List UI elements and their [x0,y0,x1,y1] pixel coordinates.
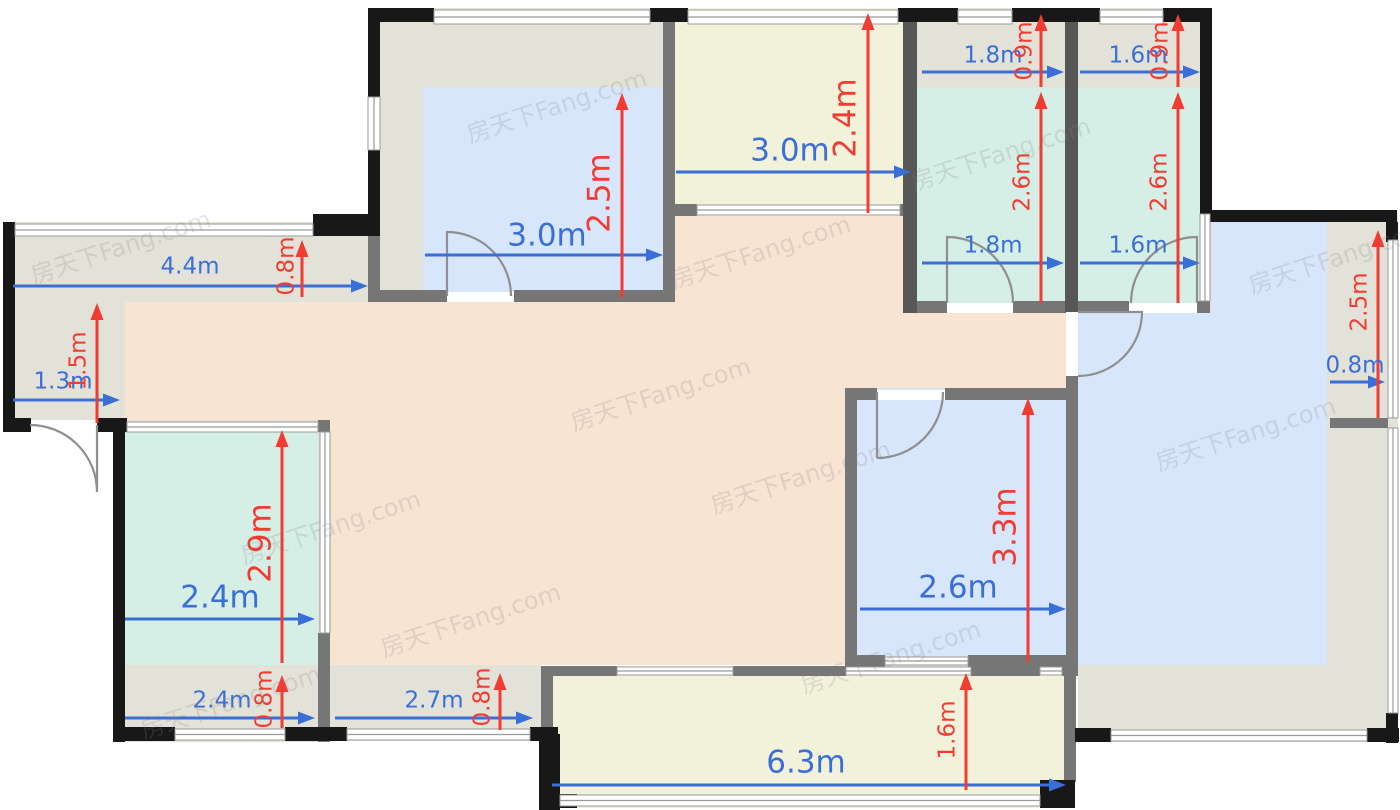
wall-segment [1012,8,1100,22]
door-gap [1066,312,1078,376]
wall-segment [1197,301,1210,313]
wall-segment [971,666,1040,676]
wall-segment [917,301,947,313]
entry-hall [3,302,125,432]
wall-segment [313,214,378,236]
door-gap [447,292,514,302]
wall-segment [845,400,857,667]
balcony-top [663,8,917,216]
wall-segment [113,420,125,742]
wall-segment [541,666,553,734]
wall-segment [663,204,697,216]
wall-segment [1013,301,1065,313]
door-entry [30,425,97,492]
wall-segment [1200,8,1212,214]
living-area-band1 [125,302,1068,390]
wall-segment [663,8,675,302]
balcony-bottom [541,666,1075,808]
wall-segment [1075,728,1111,742]
wall-segment [898,8,958,22]
floor-plan-drawing [0,0,1400,810]
wall-segment [1367,728,1399,742]
wall-segment [650,8,688,22]
bathroom-1-floor [917,88,1065,303]
wall-segment [845,655,885,667]
wall-segment [1064,676,1076,782]
living-area-band2 [125,390,845,425]
wall-segment [368,290,447,302]
bedroom-bottom-middle-floor [845,388,1078,667]
wall-segment [285,727,347,741]
wall-segment [514,290,663,302]
wall-segment [318,420,330,432]
wall-segment [1066,400,1078,665]
door-gap [947,303,1013,313]
wall-segment [845,388,877,400]
wall-segment [113,727,175,741]
wall-segment [318,633,330,742]
wall-segment [968,655,1078,667]
wall-segment [1065,8,1078,313]
wall-segment [368,8,380,97]
room-bottom-left-floor [125,425,318,665]
wall-segment [1330,418,1388,428]
door-gap [877,390,945,400]
wall-segment [1210,210,1397,222]
wall-segment [551,666,617,676]
living-area-center [330,425,845,665]
wall-segment [945,388,1078,400]
wall-segment [3,418,31,432]
wall-segment [903,8,917,313]
wall-segment [733,666,846,676]
wall-segment [1386,222,1398,242]
wall-segment [1062,666,1073,676]
bedroom-top-left-floor [423,87,665,297]
floor-plan: 4.4m1.3m3.0m3.0m1.8m1.8m1.6m1.6m0.8m2.4m… [0,0,1400,810]
